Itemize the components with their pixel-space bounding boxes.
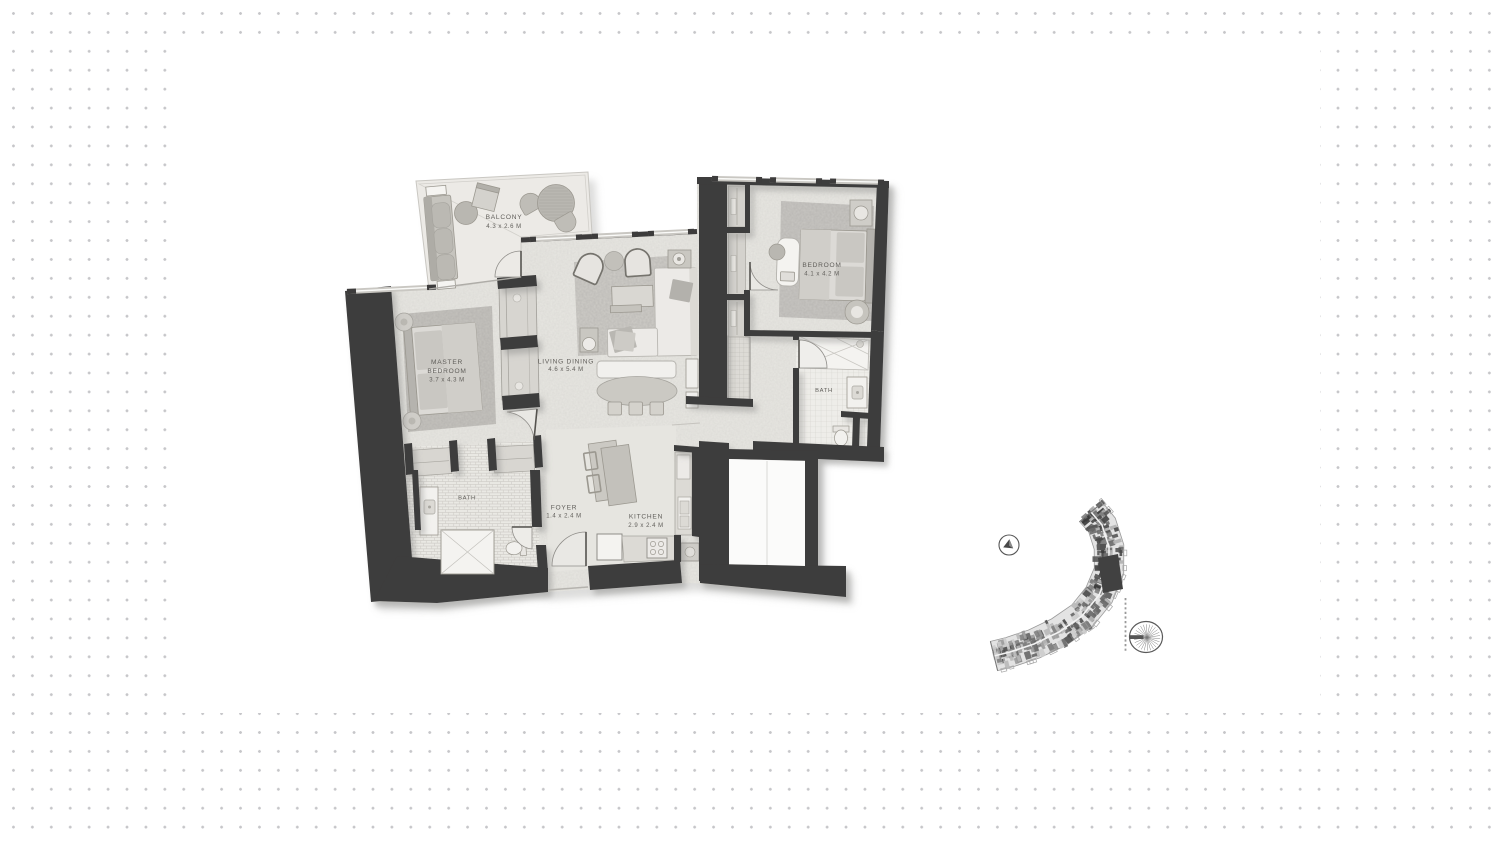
svg-text:FOYER: FOYER xyxy=(551,505,577,512)
svg-text:BALCONY: BALCONY xyxy=(486,214,523,221)
svg-text:2.9 x 2.4 M: 2.9 x 2.4 M xyxy=(628,523,663,529)
svg-text:BEDROOM: BEDROOM xyxy=(802,262,841,269)
svg-text:KITCHEN: KITCHEN xyxy=(629,514,663,521)
svg-text:BEDROOM: BEDROOM xyxy=(427,368,466,375)
svg-text:4.3 x 2.6 M: 4.3 x 2.6 M xyxy=(486,224,521,230)
svg-text:1.4 x 2.4 M: 1.4 x 2.4 M xyxy=(546,514,581,520)
svg-text:BATH: BATH xyxy=(458,496,476,502)
svg-text:MASTER: MASTER xyxy=(431,359,463,366)
svg-text:LIVING DINING: LIVING DINING xyxy=(538,359,594,366)
svg-text:BATH: BATH xyxy=(815,388,833,394)
svg-text:3.7 x 4.3 M: 3.7 x 4.3 M xyxy=(429,378,464,384)
svg-text:4.1 x 4.2 M: 4.1 x 4.2 M xyxy=(804,272,839,278)
svg-text:4.6 x 5.4 M: 4.6 x 5.4 M xyxy=(548,367,583,373)
